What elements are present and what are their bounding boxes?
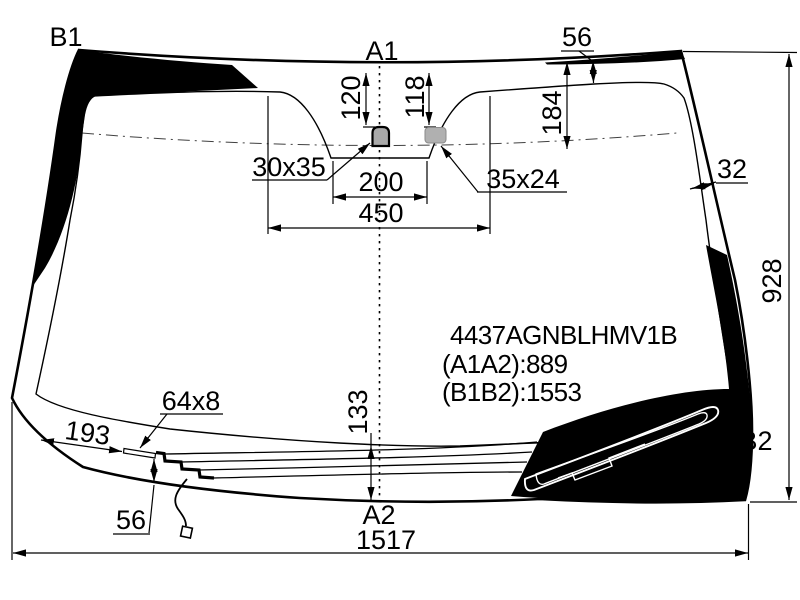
heater-line-4	[214, 472, 522, 478]
dim-line-56-top	[593, 61, 594, 83]
ext-928-top	[683, 52, 797, 53]
dim-35x24: 35x24	[486, 164, 560, 194]
dim-30x35: 30x35	[252, 152, 326, 182]
rain-sensor	[425, 128, 446, 144]
label-a1: A1	[365, 36, 398, 66]
heater-terminal-strip	[124, 449, 156, 459]
label-b2: B2	[739, 426, 772, 456]
dim-120: 120	[336, 75, 366, 120]
a1a2-distance: (A1A2):889	[442, 349, 568, 379]
dim-64x8: 64x8	[162, 386, 221, 416]
windshield-diagram: B1 A1 A2 B2 56 120 118 184 30x35 35x24 2…	[0, 0, 800, 600]
dim-200: 200	[358, 167, 403, 197]
wire-connector	[181, 526, 193, 538]
dim-118: 118	[400, 75, 430, 118]
dim-928: 928	[757, 258, 787, 303]
leader-56-bottom	[149, 485, 154, 533]
leader-64x8	[140, 414, 167, 448]
dim-193: 193	[63, 415, 112, 451]
b1b2-distance: (B1B2):1553	[442, 377, 582, 407]
dim-56-top: 56	[562, 22, 592, 52]
dim-450: 450	[358, 198, 403, 228]
leader-35x24	[441, 146, 478, 192]
label-b1: B1	[49, 22, 82, 52]
heater-line-3	[199, 462, 527, 470]
part-number: 4437AGNBLHMV1B	[450, 320, 677, 350]
dim-56-bottom: 56	[116, 505, 146, 535]
heater-busbar-steps	[156, 453, 214, 479]
dim-133: 133	[343, 389, 373, 434]
heater-line-2	[181, 452, 532, 462]
dim-184: 184	[537, 90, 567, 135]
mirror-mount	[373, 127, 390, 146]
dim-1517: 1517	[356, 525, 416, 555]
windshield-diagram-page: B1 A1 A2 B2 56 120 118 184 30x35 35x24 2…	[0, 0, 800, 600]
dim-32: 32	[717, 154, 747, 184]
